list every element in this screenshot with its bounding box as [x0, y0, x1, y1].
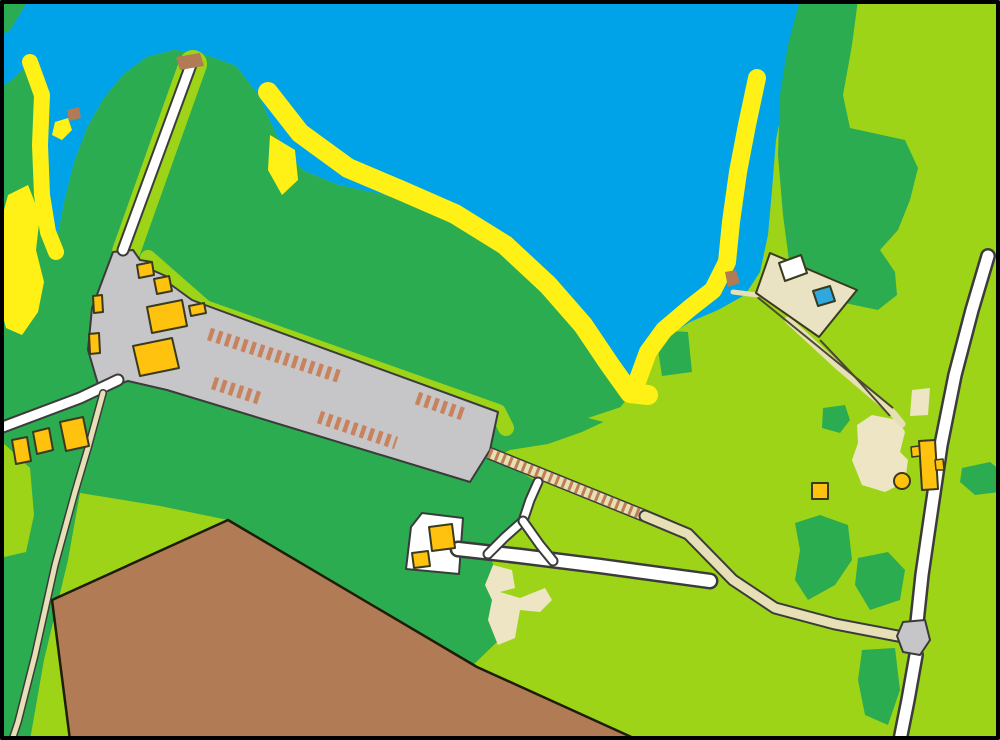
building-j: [60, 417, 89, 451]
bush-east-5: [960, 462, 1000, 495]
junction-pad: [897, 620, 930, 655]
map-canvas: [0, 0, 1000, 740]
bush-east-2: [795, 515, 852, 600]
bush-east-3: [855, 552, 905, 610]
building-f: [89, 333, 100, 354]
sand-patch-east-small: [910, 388, 930, 416]
building-i: [33, 428, 53, 454]
building-b: [154, 276, 172, 294]
building-d-large: [147, 300, 187, 333]
road-east-lower: [900, 655, 916, 740]
fence-lane-lower: [820, 340, 890, 416]
building-l: [412, 551, 430, 568]
sand-patch-south: [485, 565, 552, 645]
building-c: [93, 295, 103, 313]
building-n-wing-east: [935, 459, 944, 470]
tank-circle: [894, 473, 910, 489]
road-east-upper: [917, 256, 988, 622]
bush-east-1: [822, 405, 850, 433]
road-east-upper-surface: [917, 256, 988, 622]
swimming-pool: [813, 286, 835, 306]
building-k: [429, 524, 455, 551]
building-a: [137, 262, 154, 278]
bush-east-4: [858, 648, 900, 725]
building-m: [812, 483, 828, 499]
building-g-large: [133, 338, 179, 376]
map-image: [0, 0, 1000, 740]
building-h: [12, 437, 31, 464]
building-n-wing-west: [911, 446, 920, 457]
path-compound-shore: [733, 292, 757, 295]
building-e: [189, 303, 206, 316]
